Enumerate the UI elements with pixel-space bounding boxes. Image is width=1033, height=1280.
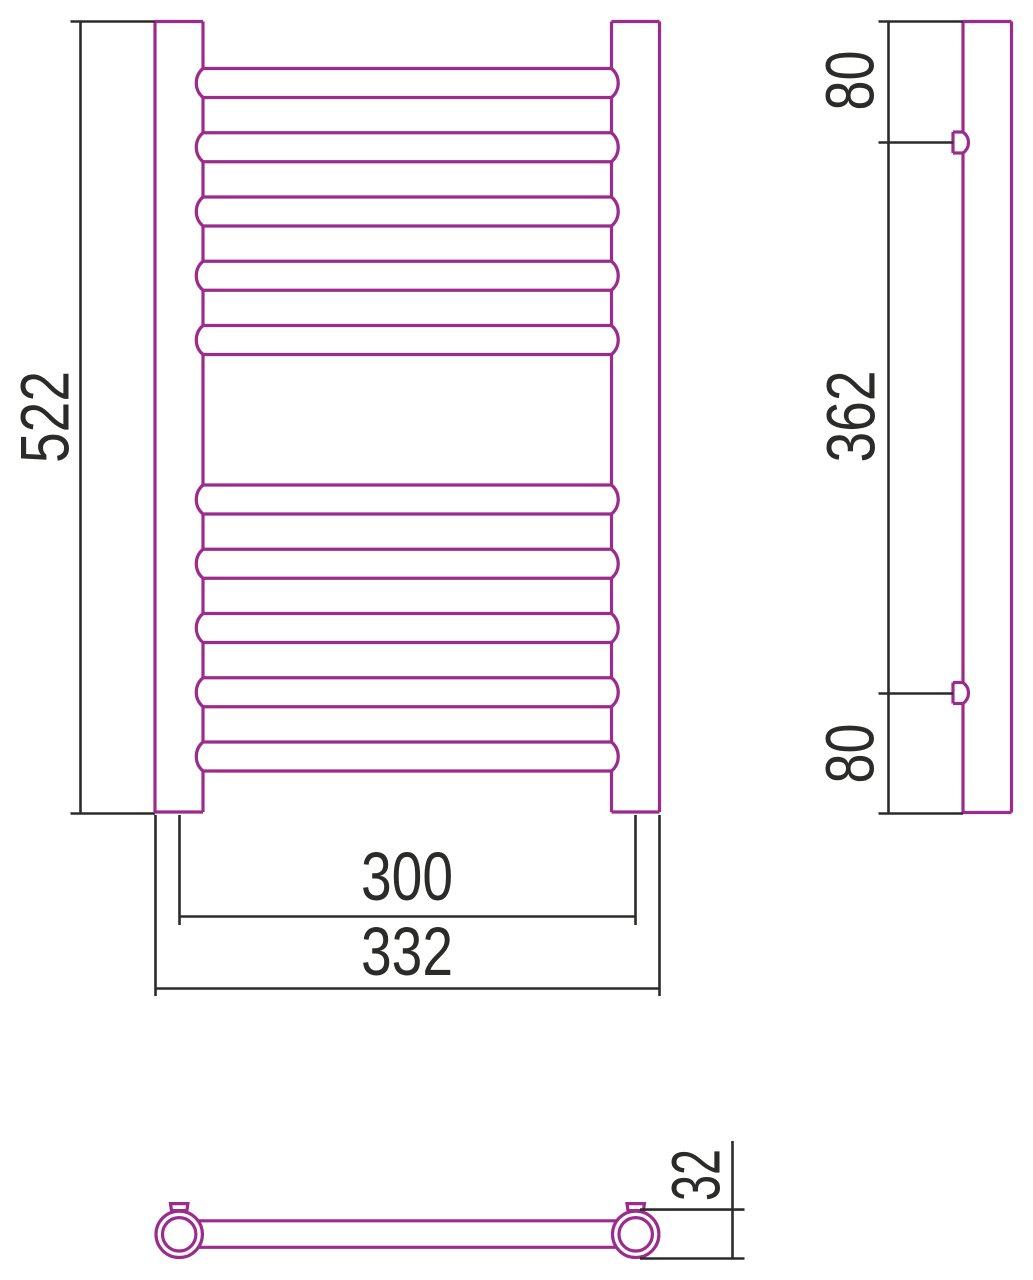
svg-text:300: 300	[361, 838, 453, 915]
svg-text:80: 80	[812, 724, 889, 784]
svg-text:332: 332	[361, 913, 453, 990]
svg-text:522: 522	[7, 371, 84, 463]
svg-text:32: 32	[658, 1149, 735, 1201]
svg-text:362: 362	[813, 371, 890, 463]
svg-text:80: 80	[812, 51, 889, 111]
